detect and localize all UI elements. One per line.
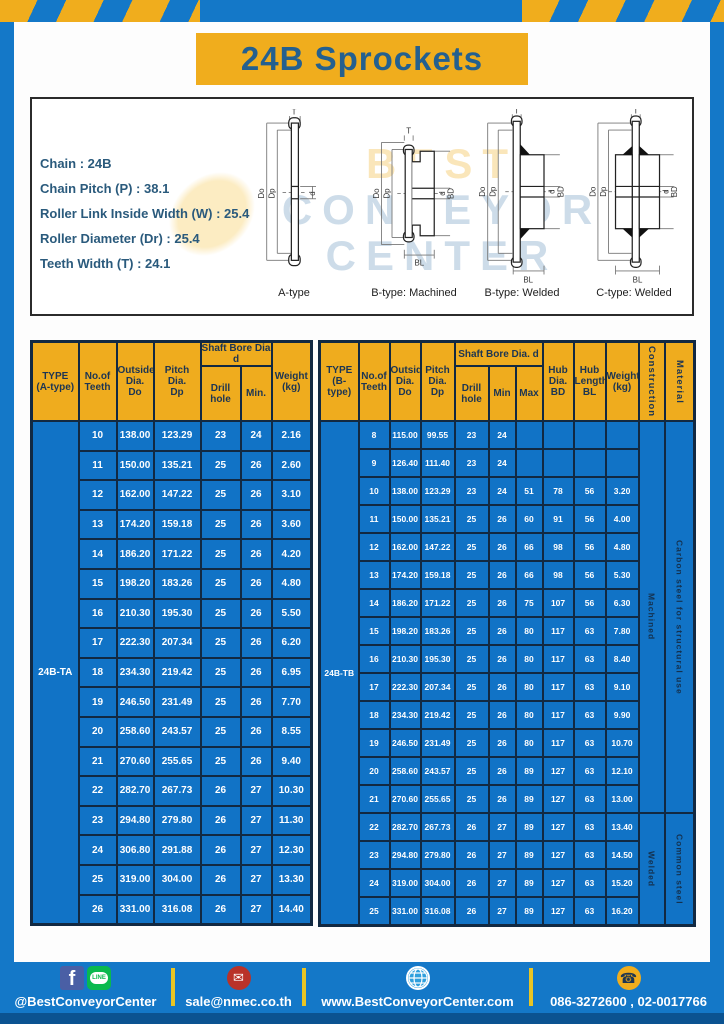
header-construction: Construction bbox=[639, 342, 665, 422]
cell: 27 bbox=[489, 813, 516, 841]
cell: 98 bbox=[543, 561, 574, 589]
cell: 5.50 bbox=[272, 599, 312, 629]
cell: 331.00 bbox=[117, 895, 154, 925]
social-handle-text: @BestConveyorCenter bbox=[15, 992, 157, 1012]
cell: 80 bbox=[516, 673, 543, 701]
cell: 306.80 bbox=[117, 835, 154, 865]
type-cell: 24B-TA bbox=[32, 421, 79, 925]
cell: 26 bbox=[455, 897, 489, 926]
cell: 270.60 bbox=[390, 785, 421, 813]
cell: 26 bbox=[489, 617, 516, 645]
cell: 27 bbox=[241, 806, 272, 836]
dim-label-bl: BL bbox=[523, 275, 533, 284]
cell: 26 bbox=[489, 757, 516, 785]
table-row: 12162.00147.2225266698564.80 bbox=[320, 533, 695, 561]
cell: 319.00 bbox=[390, 869, 421, 897]
footer-phone-group: ☎ 086-3272600 , 02-0017766 bbox=[533, 964, 724, 1012]
cell: 12 bbox=[359, 533, 390, 561]
cell: 294.80 bbox=[390, 841, 421, 869]
table-row: 17222.30207.34252680117639.10 bbox=[320, 673, 695, 701]
dim-label-bl: BL bbox=[414, 259, 424, 268]
cell: 19 bbox=[79, 687, 117, 717]
cell: 126.40 bbox=[390, 449, 421, 477]
header-type: TYPE (A-type) bbox=[32, 342, 79, 422]
top-striped-band bbox=[0, 0, 724, 22]
line-bubble-label: LINE bbox=[90, 972, 108, 984]
cell: 25 bbox=[455, 505, 489, 533]
dim-label-do: Do bbox=[588, 186, 597, 197]
cell: 258.60 bbox=[390, 757, 421, 785]
cell: 135.21 bbox=[421, 505, 455, 533]
cell: 14 bbox=[359, 589, 390, 617]
header-max: Max bbox=[516, 366, 543, 421]
figure-caption: C-type: Welded bbox=[574, 287, 694, 299]
figure-caption: A-type bbox=[234, 287, 354, 299]
cell: 63 bbox=[574, 673, 606, 701]
cell: 147.22 bbox=[421, 533, 455, 561]
cell: 25 bbox=[201, 747, 241, 777]
table-row: 10138.00123.2923245178563.20 bbox=[320, 477, 695, 505]
cell: 25 bbox=[79, 865, 117, 895]
cell: 127 bbox=[543, 785, 574, 813]
cell: 27 bbox=[241, 865, 272, 895]
cell: 231.49 bbox=[154, 687, 201, 717]
cell: 279.80 bbox=[154, 806, 201, 836]
footer-contact-bar: f LINE @BestConveyorCenter ✉ sale@nmec.c… bbox=[0, 962, 724, 1024]
cell: 26 bbox=[489, 561, 516, 589]
table-row: 18234.30219.42252680117639.90 bbox=[320, 701, 695, 729]
cell: 26 bbox=[241, 658, 272, 688]
cell: 9.10 bbox=[606, 673, 639, 701]
cell: 127 bbox=[543, 757, 574, 785]
cell: 63 bbox=[574, 813, 606, 841]
cell: 2.60 bbox=[272, 451, 312, 481]
cell: 7.80 bbox=[606, 617, 639, 645]
cell: 267.73 bbox=[421, 813, 455, 841]
cell: 25 bbox=[201, 687, 241, 717]
cell: 26 bbox=[201, 895, 241, 925]
cell: 56 bbox=[574, 533, 606, 561]
header-material: Material bbox=[665, 342, 695, 422]
cell: 27 bbox=[489, 869, 516, 897]
line-icon: LINE bbox=[87, 966, 111, 990]
cell: 63 bbox=[574, 701, 606, 729]
diagram-panel: BEST CONVEYOR CENTER Chain : 24B Chain P… bbox=[30, 97, 694, 316]
cell: 25 bbox=[455, 729, 489, 757]
cell: 258.60 bbox=[117, 717, 154, 747]
dim-label-d: d bbox=[438, 191, 447, 195]
cell: 26 bbox=[241, 510, 272, 540]
cell: 26 bbox=[241, 569, 272, 599]
cell: 4.20 bbox=[272, 539, 312, 569]
header-drill-hole: Drill hole bbox=[455, 366, 489, 421]
cell: 80 bbox=[516, 701, 543, 729]
cell: 27 bbox=[489, 841, 516, 869]
cell: 20 bbox=[359, 757, 390, 785]
cell: 27 bbox=[489, 897, 516, 926]
cell: 2.16 bbox=[272, 421, 312, 451]
footer-social-group: f LINE @BestConveyorCenter bbox=[0, 964, 171, 1012]
header-weight: Weight (kg) bbox=[272, 342, 312, 422]
header-shaft-bore: Shaft Bore Dia. d bbox=[455, 342, 543, 367]
cell bbox=[543, 449, 574, 477]
cell: 26 bbox=[241, 599, 272, 629]
sprocket-drawing-a: T Do Dp d bbox=[234, 109, 354, 285]
cell: 16 bbox=[359, 645, 390, 673]
table-b-header: TYPE (B-type) No.of Teeth Outside Dia. D… bbox=[320, 342, 695, 422]
table-row: 19246.50231.492526801176310.70 bbox=[320, 729, 695, 757]
cell: 26 bbox=[241, 480, 272, 510]
cell: 4.80 bbox=[272, 569, 312, 599]
cell: 21 bbox=[359, 785, 390, 813]
cell: 80 bbox=[516, 729, 543, 757]
header-teeth: No.of Teeth bbox=[79, 342, 117, 422]
cell: 25 bbox=[455, 757, 489, 785]
cell: 25 bbox=[201, 569, 241, 599]
cell: 25 bbox=[201, 451, 241, 481]
construction-cell: Machined bbox=[639, 421, 665, 813]
cell: 89 bbox=[516, 785, 543, 813]
cell: 15 bbox=[79, 569, 117, 599]
cell: 186.20 bbox=[117, 539, 154, 569]
dim-label-t: T bbox=[406, 127, 411, 136]
type-cell: 24B-TB bbox=[320, 421, 359, 926]
cell: 78 bbox=[543, 477, 574, 505]
figure-caption: B-type: Machined bbox=[354, 287, 474, 299]
cell: 9 bbox=[359, 449, 390, 477]
figure-a-type: T Do Dp d A-type bbox=[234, 109, 354, 299]
cell: 60 bbox=[516, 505, 543, 533]
cell: 22 bbox=[79, 776, 117, 806]
cell: 25 bbox=[201, 539, 241, 569]
cell: 26 bbox=[241, 451, 272, 481]
cell: 11 bbox=[79, 451, 117, 481]
cell: 282.70 bbox=[117, 776, 154, 806]
table-a-type: TYPE (A-type) No.of Teeth Outside Dia. D… bbox=[30, 340, 313, 926]
cell: 26 bbox=[241, 747, 272, 777]
table-row: 16210.30195.30252680117638.40 bbox=[320, 645, 695, 673]
cell: 63 bbox=[574, 869, 606, 897]
cell: 91 bbox=[543, 505, 574, 533]
header-min: Min. bbox=[241, 366, 272, 421]
table-row: 21270.60255.652526891276313.00 bbox=[320, 785, 695, 813]
cell: 25 bbox=[201, 599, 241, 629]
cell: 210.30 bbox=[390, 645, 421, 673]
cell: 25 bbox=[201, 628, 241, 658]
cell: 195.30 bbox=[154, 599, 201, 629]
cell: 18 bbox=[79, 658, 117, 688]
cell: 162.00 bbox=[390, 533, 421, 561]
cell: 26 bbox=[455, 841, 489, 869]
cell: 27 bbox=[241, 776, 272, 806]
cell: 25 bbox=[359, 897, 390, 926]
cell: 8.55 bbox=[272, 717, 312, 747]
title-banner: 24B Sprockets bbox=[196, 33, 528, 85]
cell: 63 bbox=[574, 645, 606, 673]
cell: 12.10 bbox=[606, 757, 639, 785]
footer-bottom-stripe bbox=[0, 1013, 724, 1024]
header-hub-dia: Hub Dia. BD bbox=[543, 342, 574, 422]
cell: 4.80 bbox=[606, 533, 639, 561]
cell: 123.29 bbox=[154, 421, 201, 451]
cell: 171.22 bbox=[421, 589, 455, 617]
table-row: 20258.60243.572526891276312.10 bbox=[320, 757, 695, 785]
cell: 183.26 bbox=[154, 569, 201, 599]
cell: 24 bbox=[489, 477, 516, 505]
cell: 316.08 bbox=[421, 897, 455, 926]
cell: 117 bbox=[543, 701, 574, 729]
header-outside-dia: Outside Dia. Do bbox=[117, 342, 154, 422]
cell: 159.18 bbox=[421, 561, 455, 589]
figure-b-type-welded: T Do Dp d BD BL B-type: Welded bbox=[462, 109, 582, 299]
diagonal-stripes-right bbox=[522, 0, 724, 22]
cell: 23 bbox=[455, 449, 489, 477]
cell: 198.20 bbox=[117, 569, 154, 599]
cell: 16.20 bbox=[606, 897, 639, 926]
cell bbox=[543, 421, 574, 449]
cell: 20 bbox=[79, 717, 117, 747]
cell: 17 bbox=[79, 628, 117, 658]
cell: 23 bbox=[455, 421, 489, 449]
cell bbox=[516, 449, 543, 477]
cell: 26 bbox=[201, 776, 241, 806]
page-title: 24B Sprockets bbox=[241, 40, 483, 78]
phone-numbers-text: 086-3272600 , 02-0017766 bbox=[550, 992, 707, 1012]
header-pitch-dia: Pitch Dia. Dp bbox=[154, 342, 201, 422]
website-text: www.BestConveyorCenter.com bbox=[321, 992, 513, 1012]
cell: 56 bbox=[574, 589, 606, 617]
cell: 26 bbox=[79, 895, 117, 925]
sprocket-drawing-c-welded: T Do Dp d BD BL bbox=[574, 109, 694, 285]
cell: 12 bbox=[79, 480, 117, 510]
table-row: 24B-TA10138.00123.2923242.16 bbox=[32, 421, 312, 451]
table-row: 14186.20171.22252675107566.30 bbox=[320, 589, 695, 617]
cell: 63 bbox=[574, 897, 606, 926]
cell: 127 bbox=[543, 841, 574, 869]
cell: 26 bbox=[201, 865, 241, 895]
cell: 3.20 bbox=[606, 477, 639, 505]
cell: 255.65 bbox=[421, 785, 455, 813]
cell: 159.18 bbox=[154, 510, 201, 540]
cell: 231.49 bbox=[421, 729, 455, 757]
cell: 99.55 bbox=[421, 421, 455, 449]
dim-label-dp: Dp bbox=[268, 188, 277, 199]
cell: 25 bbox=[455, 673, 489, 701]
facebook-icon: f bbox=[60, 966, 84, 990]
cell: 89 bbox=[516, 757, 543, 785]
cell: 6.95 bbox=[272, 658, 312, 688]
cell: 24 bbox=[489, 421, 516, 449]
figure-caption: B-type: Welded bbox=[462, 287, 582, 299]
cell: 98 bbox=[543, 533, 574, 561]
cell: 63 bbox=[574, 729, 606, 757]
cell: 319.00 bbox=[117, 865, 154, 895]
cell: 25 bbox=[201, 510, 241, 540]
cell: 18 bbox=[359, 701, 390, 729]
cell: 3.10 bbox=[272, 480, 312, 510]
cell: 24 bbox=[489, 449, 516, 477]
figure-b-type-machined: T Do Dp d BD BL B-type: Machined bbox=[354, 109, 474, 299]
header-shaft-bore: Shaft Bore Dia d bbox=[201, 342, 272, 367]
cell bbox=[574, 449, 606, 477]
cell: 14.50 bbox=[606, 841, 639, 869]
cell: 27 bbox=[241, 895, 272, 925]
cell: 195.30 bbox=[421, 645, 455, 673]
dim-label-t: T bbox=[514, 109, 519, 115]
cell: 26 bbox=[201, 806, 241, 836]
cell: 304.00 bbox=[154, 865, 201, 895]
cell: 8 bbox=[359, 421, 390, 449]
cell: 207.34 bbox=[154, 628, 201, 658]
phone-icon: ☎ bbox=[617, 966, 641, 990]
cell: 23 bbox=[201, 421, 241, 451]
cell: 80 bbox=[516, 617, 543, 645]
cell: 117 bbox=[543, 645, 574, 673]
cell: 135.21 bbox=[154, 451, 201, 481]
cell: 207.34 bbox=[421, 673, 455, 701]
table-a-header: TYPE (A-type) No.of Teeth Outside Dia. D… bbox=[32, 342, 312, 422]
dim-label-dp: Dp bbox=[599, 186, 608, 197]
cell: 19 bbox=[359, 729, 390, 757]
page: { "title_banner": "24B Sprockets", "spec… bbox=[0, 0, 724, 1024]
cell: 14.40 bbox=[272, 895, 312, 925]
table-row: 24B-TB8115.0099.552324MachinedCarbon ste… bbox=[320, 421, 695, 449]
email-text: sale@nmec.co.th bbox=[185, 992, 292, 1012]
cell: 270.60 bbox=[117, 747, 154, 777]
cell: 17 bbox=[359, 673, 390, 701]
cell: 13 bbox=[79, 510, 117, 540]
dim-label-do: Do bbox=[257, 188, 266, 199]
cell: 63 bbox=[574, 785, 606, 813]
table-row: 23294.80279.802627891276314.50 bbox=[320, 841, 695, 869]
cell: 7.70 bbox=[272, 687, 312, 717]
cell: 26 bbox=[455, 813, 489, 841]
cell: 89 bbox=[516, 841, 543, 869]
dim-label-dp: Dp bbox=[489, 186, 498, 197]
cell: 138.00 bbox=[390, 477, 421, 505]
cell: 162.00 bbox=[117, 480, 154, 510]
table-row: 22282.70267.732627891276313.40WeldedComm… bbox=[320, 813, 695, 841]
cell: 147.22 bbox=[154, 480, 201, 510]
cell bbox=[516, 421, 543, 449]
cell: 234.30 bbox=[390, 701, 421, 729]
sprocket-drawing-b-welded: T Do Dp d BD BL bbox=[462, 109, 582, 285]
cell: 138.00 bbox=[117, 421, 154, 451]
material-cell: Carbon steel for structural use bbox=[665, 421, 695, 813]
cell: 11 bbox=[359, 505, 390, 533]
dim-label-d: d bbox=[661, 190, 670, 194]
cell: 63 bbox=[574, 841, 606, 869]
cell: 23 bbox=[359, 841, 390, 869]
cell: 234.30 bbox=[117, 658, 154, 688]
header-hub-length: Hub Length BL bbox=[574, 342, 606, 422]
cell: 25 bbox=[455, 701, 489, 729]
cell: 9.40 bbox=[272, 747, 312, 777]
cell: 127 bbox=[543, 897, 574, 926]
table-a-body: 24B-TA10138.00123.2923242.1611150.00135.… bbox=[32, 421, 312, 925]
dim-label-dp: Dp bbox=[382, 188, 391, 199]
dim-label-d: d bbox=[548, 190, 557, 194]
header-pitch-dia: Pitch Dia. Dp bbox=[421, 342, 455, 422]
cell: 24 bbox=[241, 421, 272, 451]
cell: 56 bbox=[574, 561, 606, 589]
cell: 13.30 bbox=[272, 865, 312, 895]
cell: 26 bbox=[489, 701, 516, 729]
cell: 26 bbox=[489, 729, 516, 757]
cell: 24 bbox=[79, 835, 117, 865]
cell: 150.00 bbox=[117, 451, 154, 481]
cell: 25 bbox=[455, 533, 489, 561]
cell: 123.29 bbox=[421, 477, 455, 505]
dim-label-bd: BD bbox=[556, 186, 565, 197]
dim-label-t: T bbox=[633, 109, 638, 115]
cell: 316.08 bbox=[154, 895, 201, 925]
cell: 291.88 bbox=[154, 835, 201, 865]
cell: 56 bbox=[574, 477, 606, 505]
table-row: 15198.20183.26252680117637.80 bbox=[320, 617, 695, 645]
cell: 10 bbox=[359, 477, 390, 505]
cell: 304.00 bbox=[421, 869, 455, 897]
cell: 219.42 bbox=[421, 701, 455, 729]
cell: 26 bbox=[201, 835, 241, 865]
cell: 174.20 bbox=[117, 510, 154, 540]
cell: 27 bbox=[241, 835, 272, 865]
cell: 15 bbox=[359, 617, 390, 645]
header-teeth: No.of Teeth bbox=[359, 342, 390, 422]
cell: 9.90 bbox=[606, 701, 639, 729]
email-icon: ✉ bbox=[227, 966, 251, 990]
cell bbox=[574, 421, 606, 449]
cell: 22 bbox=[359, 813, 390, 841]
footer-email-group: ✉ sale@nmec.co.th bbox=[175, 964, 302, 1012]
cell: 15.20 bbox=[606, 869, 639, 897]
cell: 183.26 bbox=[421, 617, 455, 645]
cell: 25 bbox=[455, 561, 489, 589]
footer-website-group: www.BestConveyorCenter.com bbox=[306, 964, 529, 1012]
figure-c-type-welded: T Do Dp d BD BL C-type: Welded bbox=[574, 109, 694, 299]
cell: 117 bbox=[543, 673, 574, 701]
cell: 25 bbox=[455, 617, 489, 645]
cell: 3.60 bbox=[272, 510, 312, 540]
cell: 63 bbox=[574, 617, 606, 645]
cell bbox=[606, 421, 639, 449]
material-cell: Common steel bbox=[665, 813, 695, 926]
cell: 25 bbox=[455, 589, 489, 617]
diagonal-stripes-left bbox=[0, 0, 200, 22]
cell: 89 bbox=[516, 813, 543, 841]
cell: 5.30 bbox=[606, 561, 639, 589]
table-row: 11150.00135.2125266091564.00 bbox=[320, 505, 695, 533]
header-min: Min bbox=[489, 366, 516, 421]
header-outside-dia: Outside Dia. Do bbox=[390, 342, 421, 422]
cell: 26 bbox=[489, 785, 516, 813]
cell: 75 bbox=[516, 589, 543, 617]
cell: 26 bbox=[455, 869, 489, 897]
cell: 80 bbox=[516, 645, 543, 673]
cell: 107 bbox=[543, 589, 574, 617]
cell: 255.65 bbox=[154, 747, 201, 777]
dim-label-bl: BL bbox=[633, 275, 643, 284]
cell: 24 bbox=[359, 869, 390, 897]
cell: 198.20 bbox=[390, 617, 421, 645]
cell: 10 bbox=[79, 421, 117, 451]
table-row: 24319.00304.002627891276315.20 bbox=[320, 869, 695, 897]
cell: 89 bbox=[516, 897, 543, 926]
cell: 26 bbox=[241, 687, 272, 717]
cell: 186.20 bbox=[390, 589, 421, 617]
cell: 21 bbox=[79, 747, 117, 777]
header-type: TYPE (B-type) bbox=[320, 342, 359, 422]
